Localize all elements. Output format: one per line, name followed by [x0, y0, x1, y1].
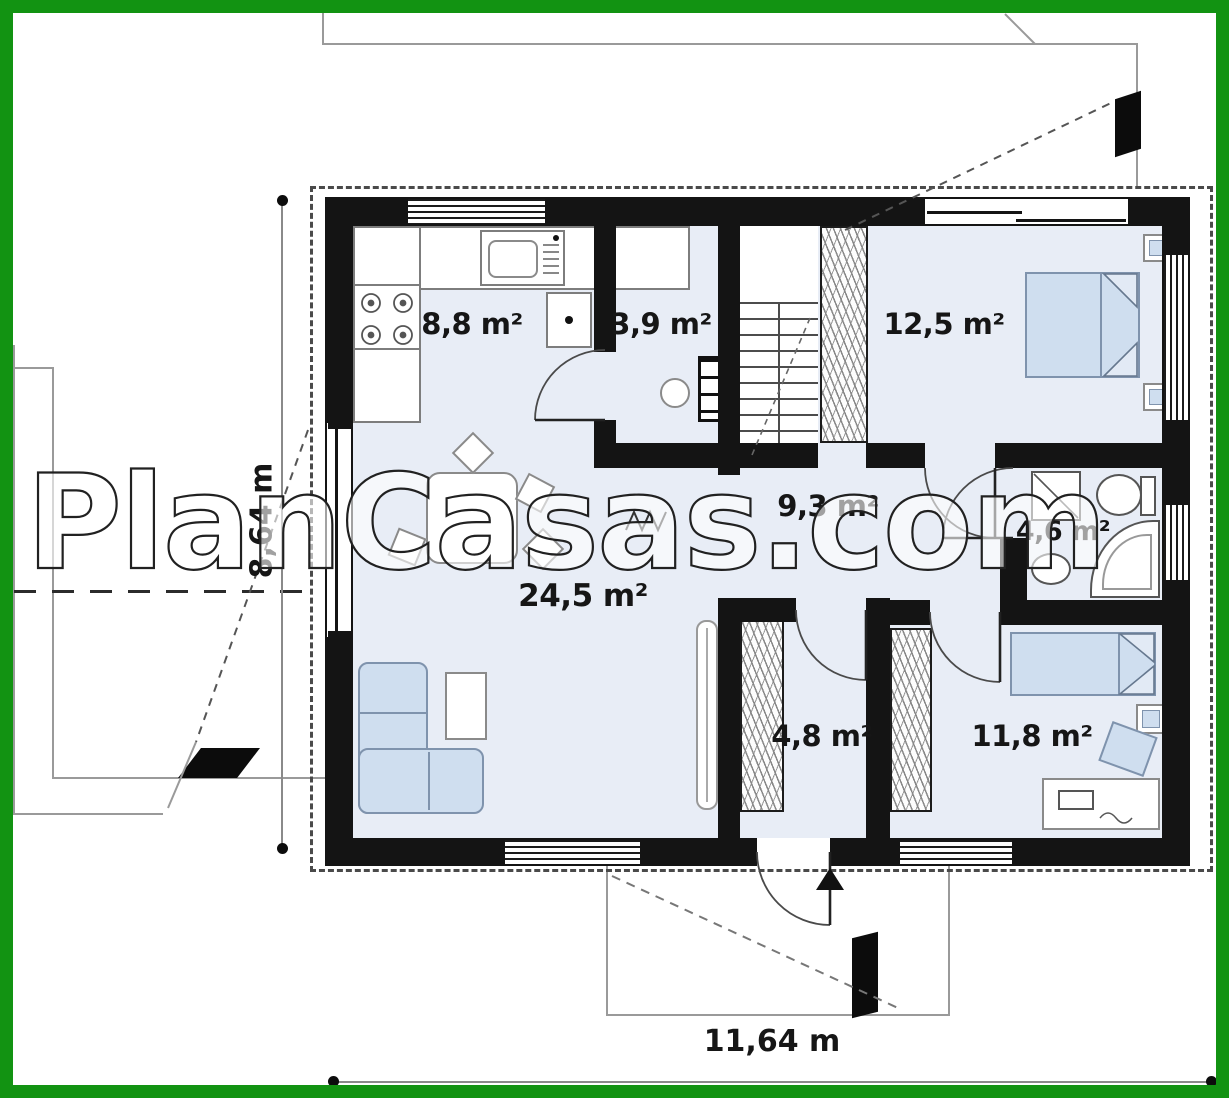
room-label-pantry: 3,9 m² — [601, 307, 721, 341]
chimney-mark-top-right — [1115, 91, 1141, 157]
dimension-dot-top — [277, 195, 288, 206]
dimension-label-width: 11,64 m — [672, 1024, 872, 1059]
site-outline-top-horizontal — [322, 43, 1138, 45]
wall-entry-bedroom2 — [866, 598, 890, 838]
wall-bathroom-bottom — [1000, 600, 1162, 625]
dimension-dot-right — [1206, 1076, 1217, 1087]
wall-pantry-staircase — [718, 226, 740, 475]
wardrobe-bedroom1 — [820, 226, 868, 443]
sofa-cushion-seam-a — [360, 712, 426, 714]
radiator-living-line — [706, 628, 708, 802]
watermark-text: PlanCasas.com — [26, 446, 1221, 599]
floor-plan-canvas: 8,64 m 11,64 m 8,8 m² 3,9 m² 12,5 m² 9,3… — [0, 0, 1229, 1098]
site-outline-left-horizontal-lower — [13, 813, 163, 815]
porch-pillar — [852, 932, 878, 1018]
staircase-rail — [778, 302, 780, 443]
entrance-door-gap — [757, 838, 830, 866]
bed1-fold-line — [1100, 274, 1102, 376]
room-label-kitchen: 8,8 m² — [402, 307, 542, 341]
room-label-bedroom1: 12,5 m² — [864, 307, 1024, 341]
dimension-dot-bottom — [277, 843, 288, 854]
porch-outline-bottom — [606, 1014, 950, 1016]
site-diagonal-top — [1005, 14, 1035, 44]
window-living-left-tick-top — [328, 423, 351, 429]
side-table — [445, 672, 487, 740]
porch-outline-left — [606, 866, 608, 1016]
room-label-entry: 4,8 m² — [742, 719, 902, 753]
bed2-fold-line — [1118, 634, 1120, 694]
window-kitchen-top — [408, 199, 545, 224]
corner-sofa-horizontal — [358, 748, 484, 814]
window-bedroom1-top-line-b — [1016, 219, 1126, 222]
wall-kitchen-pantry-stub — [594, 420, 616, 445]
window-bedroom1-top-line-a — [927, 211, 1022, 214]
sofa-cushion-seam-b — [428, 752, 430, 810]
laptop — [1058, 790, 1094, 810]
porch-outline-right — [948, 866, 950, 1016]
wall-bedroom2-top-stub — [890, 600, 930, 625]
wall-living-entry — [718, 612, 740, 838]
kitchen-sink-drainer — [543, 244, 559, 274]
dimension-dot-left — [328, 1076, 339, 1087]
dimension-line-horizontal — [333, 1081, 1211, 1083]
chimney-mark-left — [178, 748, 260, 778]
window-living-left-tick-bottom — [328, 631, 351, 637]
window-living-bottom — [505, 840, 640, 864]
pantry-chair — [660, 378, 690, 408]
site-outline-top-left-vertical — [322, 12, 324, 45]
wardrobe-entry-left — [740, 614, 784, 812]
window-bedroom2-bottom — [900, 840, 1012, 864]
window-bedroom1-right — [1164, 255, 1188, 420]
fridge — [546, 292, 592, 348]
bed-bedroom2 — [1010, 632, 1156, 696]
double-bed-bedroom1 — [1025, 272, 1140, 378]
site-outline-left-notch — [13, 367, 53, 369]
site-outline-left-vertical — [13, 345, 15, 815]
room-label-bedroom2: 11,8 m² — [942, 719, 1122, 753]
kitchen-sink-basin — [488, 240, 538, 278]
